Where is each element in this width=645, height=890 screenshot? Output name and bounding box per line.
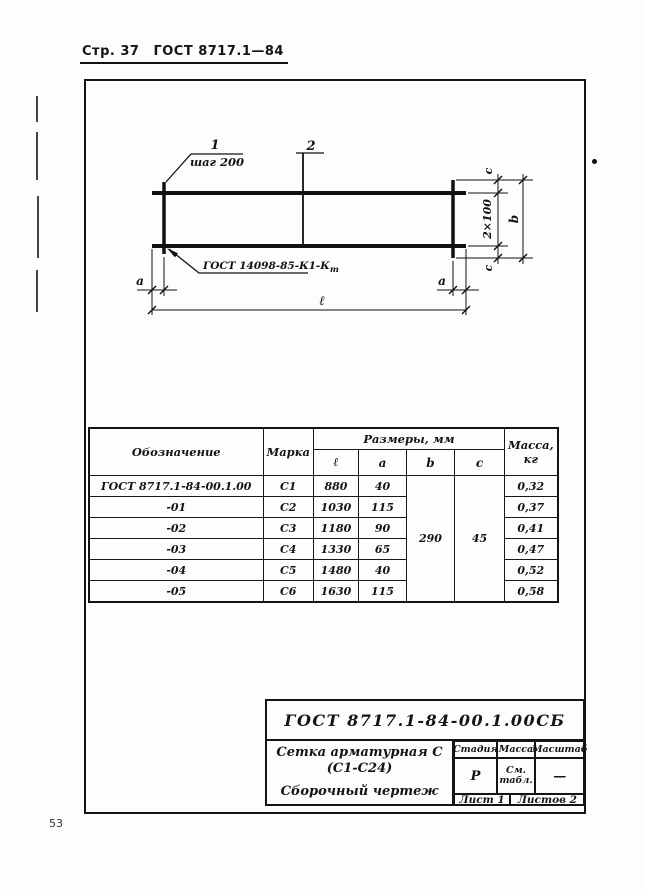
title-name-line3: Сборочный чертеж bbox=[281, 784, 439, 800]
cell-mass: 0,58 bbox=[504, 581, 557, 603]
callout-1-note: шаг 200 bbox=[190, 155, 244, 169]
col-header-dimensions: Размеры, мм bbox=[313, 428, 504, 450]
cell-a: 40 bbox=[358, 560, 406, 581]
title-name: Сетка арматурная С (С1-С24) Сборочный че… bbox=[267, 741, 454, 804]
mass-label: Масса bbox=[497, 741, 535, 758]
cell-l: 1180 bbox=[313, 518, 358, 539]
footer-page-number: 53 bbox=[49, 817, 63, 830]
weld-arrowhead bbox=[167, 248, 178, 257]
cell-designation: -03 bbox=[89, 539, 263, 560]
dim-c-top-label: c bbox=[482, 167, 495, 174]
cell-l: 1480 bbox=[313, 560, 358, 581]
cell-mass: 0,52 bbox=[504, 560, 557, 581]
scale-value: — bbox=[535, 758, 585, 794]
cell-mark: С2 bbox=[263, 497, 313, 518]
col-header-mark: Марка bbox=[263, 428, 313, 476]
cell-a: 65 bbox=[358, 539, 406, 560]
cell-a: 115 bbox=[358, 497, 406, 518]
mesh-drawing: 1 шаг 200 2 ГОСТ 14098-85-К1-Кт a a ℓ c … bbox=[0, 0, 645, 340]
dim-a-right-label: a bbox=[438, 274, 446, 288]
col-header-a: a bbox=[358, 450, 406, 476]
dim-l-label: ℓ bbox=[319, 294, 325, 309]
title-block: ГОСТ 8717.1-84-00.1.00СБ Сетка арматурна… bbox=[265, 699, 585, 806]
col-header-b: b bbox=[406, 450, 454, 476]
cell-mass: 0,41 bbox=[504, 518, 557, 539]
col-header-designation: Обозначение bbox=[89, 428, 263, 476]
cell-mark: С6 bbox=[263, 581, 313, 603]
dim-c-bottom-label: c bbox=[482, 264, 495, 271]
col-header-c: c bbox=[454, 450, 504, 476]
callout-2-label: 2 bbox=[305, 139, 315, 154]
cell-mark: С5 bbox=[263, 560, 313, 581]
dim-a-left-label: a bbox=[136, 274, 144, 288]
cell-designation: ГОСТ 8717.1-84-00.1.00 bbox=[89, 476, 263, 497]
cell-mass: 0,32 bbox=[504, 476, 557, 497]
dim-b-label: b bbox=[507, 215, 521, 223]
title-doc-number: ГОСТ 8717.1-84-00.1.00СБ bbox=[267, 701, 583, 741]
col-header-l: ℓ bbox=[313, 450, 358, 476]
cell-mass: 0,47 bbox=[504, 539, 557, 560]
cell-b-merged: 290 bbox=[406, 476, 454, 603]
cell-mark: С3 bbox=[263, 518, 313, 539]
sheet-cell: Лист 1 bbox=[454, 794, 510, 806]
cell-l: 1030 bbox=[313, 497, 358, 518]
scale-label: Масштаб bbox=[535, 741, 585, 758]
cell-l: 1630 bbox=[313, 581, 358, 603]
cell-designation: -02 bbox=[89, 518, 263, 539]
stage-label: Стадия bbox=[454, 741, 497, 758]
cell-designation: -01 bbox=[89, 497, 263, 518]
cell-mark: С4 bbox=[263, 539, 313, 560]
title-name-line2: (С1-С24) bbox=[327, 761, 393, 777]
col-header-mass: Масса,кг bbox=[504, 428, 557, 476]
cell-l: 880 bbox=[313, 476, 358, 497]
cell-designation: -04 bbox=[89, 560, 263, 581]
dim-span-label: 2×100 bbox=[481, 199, 494, 240]
table-row: ГОСТ 8717.1-84-00.1.00 С1 880 40 290 45 … bbox=[89, 476, 558, 497]
cell-l: 1330 bbox=[313, 539, 358, 560]
cell-a: 115 bbox=[358, 581, 406, 603]
cell-mark: С1 bbox=[263, 476, 313, 497]
title-name-line1: Сетка арматурная С bbox=[276, 745, 442, 761]
cell-a: 90 bbox=[358, 518, 406, 539]
cell-designation: -05 bbox=[89, 581, 263, 603]
cell-a: 40 bbox=[358, 476, 406, 497]
spec-table: Обозначение Марка Размеры, мм Масса,кг ℓ… bbox=[88, 427, 559, 603]
mass-value: См. табл. bbox=[497, 758, 535, 794]
sheets-cell: Листов 2 bbox=[510, 794, 585, 806]
cell-c-merged: 45 bbox=[454, 476, 504, 603]
cell-mass: 0,37 bbox=[504, 497, 557, 518]
stage-value: Р bbox=[454, 758, 497, 794]
callout-1-label: 1 bbox=[210, 138, 219, 153]
